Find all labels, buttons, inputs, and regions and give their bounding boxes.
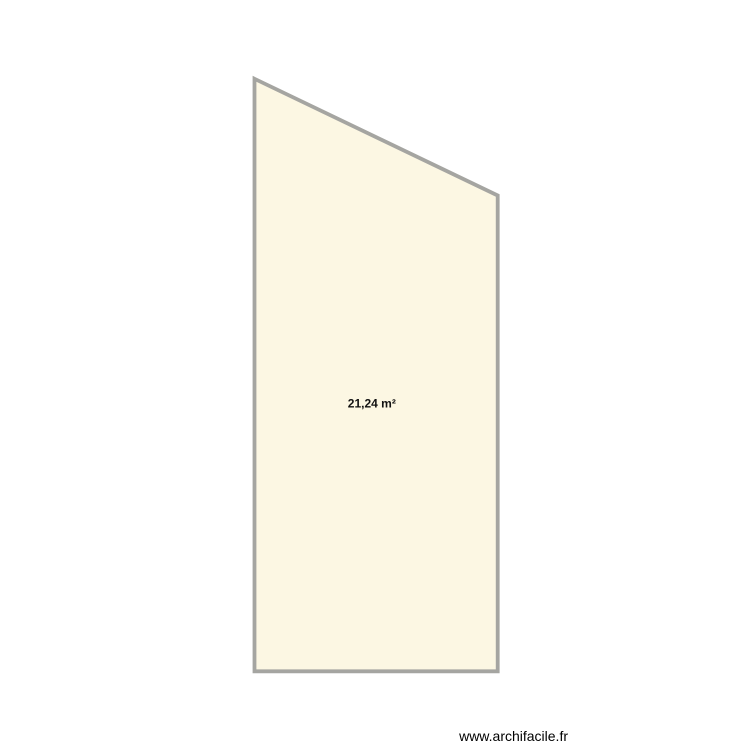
- svg-text:21,24 m²: 21,24 m²: [348, 397, 396, 411]
- svg-text:www.archifacile.fr: www.archifacile.fr: [458, 728, 568, 744]
